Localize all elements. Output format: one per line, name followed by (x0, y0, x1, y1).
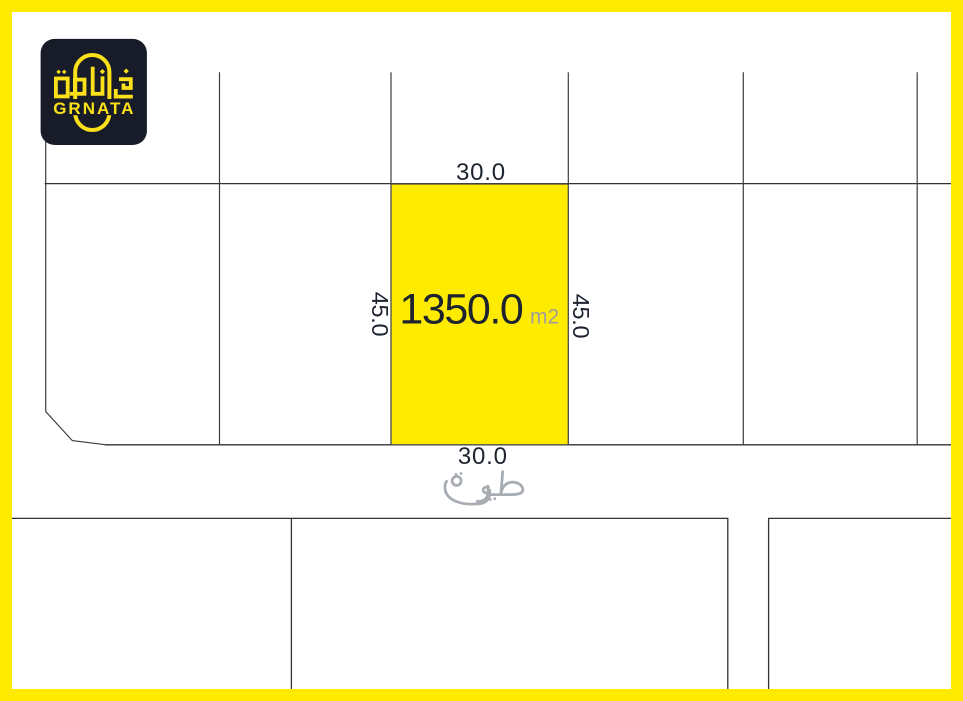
svg-text:45.0: 45.0 (568, 294, 594, 339)
svg-text:GRNATA: GRNATA (53, 99, 135, 118)
svg-text:m2: m2 (530, 306, 559, 329)
svg-text:45.0: 45.0 (367, 292, 393, 337)
svg-text:30.0: 30.0 (458, 443, 508, 470)
svg-text:1350.0: 1350.0 (399, 286, 523, 334)
svg-text:30.0: 30.0 (456, 159, 506, 186)
